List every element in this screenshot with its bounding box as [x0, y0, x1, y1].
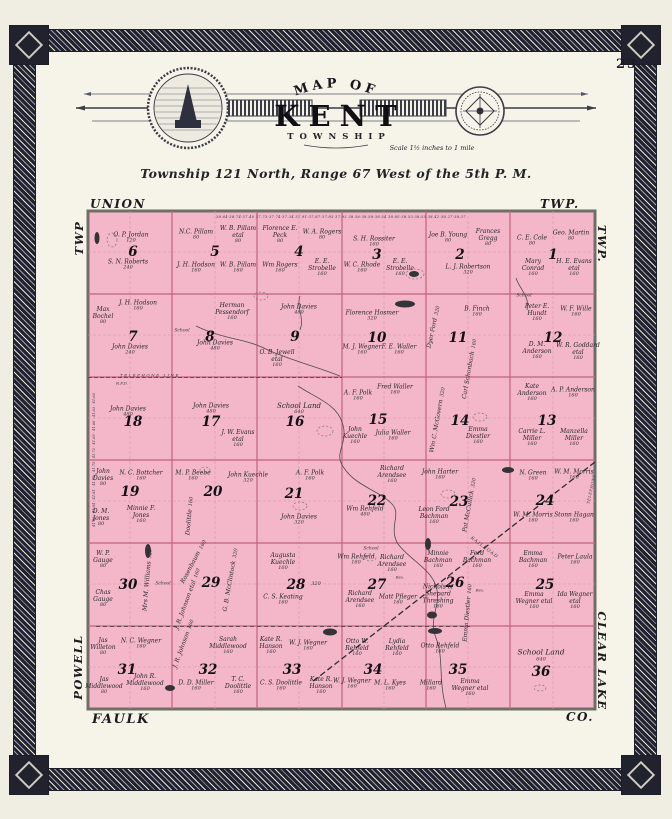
twp-label-right: TWP. [595, 225, 609, 263]
atlas-page: 23 [0, 0, 672, 819]
neighbor-township-top-left: UNION [90, 197, 146, 211]
twp-label-left: TWP [72, 221, 86, 256]
neighbor-township-top-right: TWP. [540, 197, 580, 211]
county-abbrev-bottom-right: CO. [566, 710, 594, 724]
neighbor-lake-right: CLEAR LAKE [595, 611, 609, 710]
neighbor-township-left-bottom: POWELL [71, 634, 85, 700]
neighbor-county-bottom-left: FAULK [92, 712, 150, 727]
plat-map [0, 0, 672, 819]
